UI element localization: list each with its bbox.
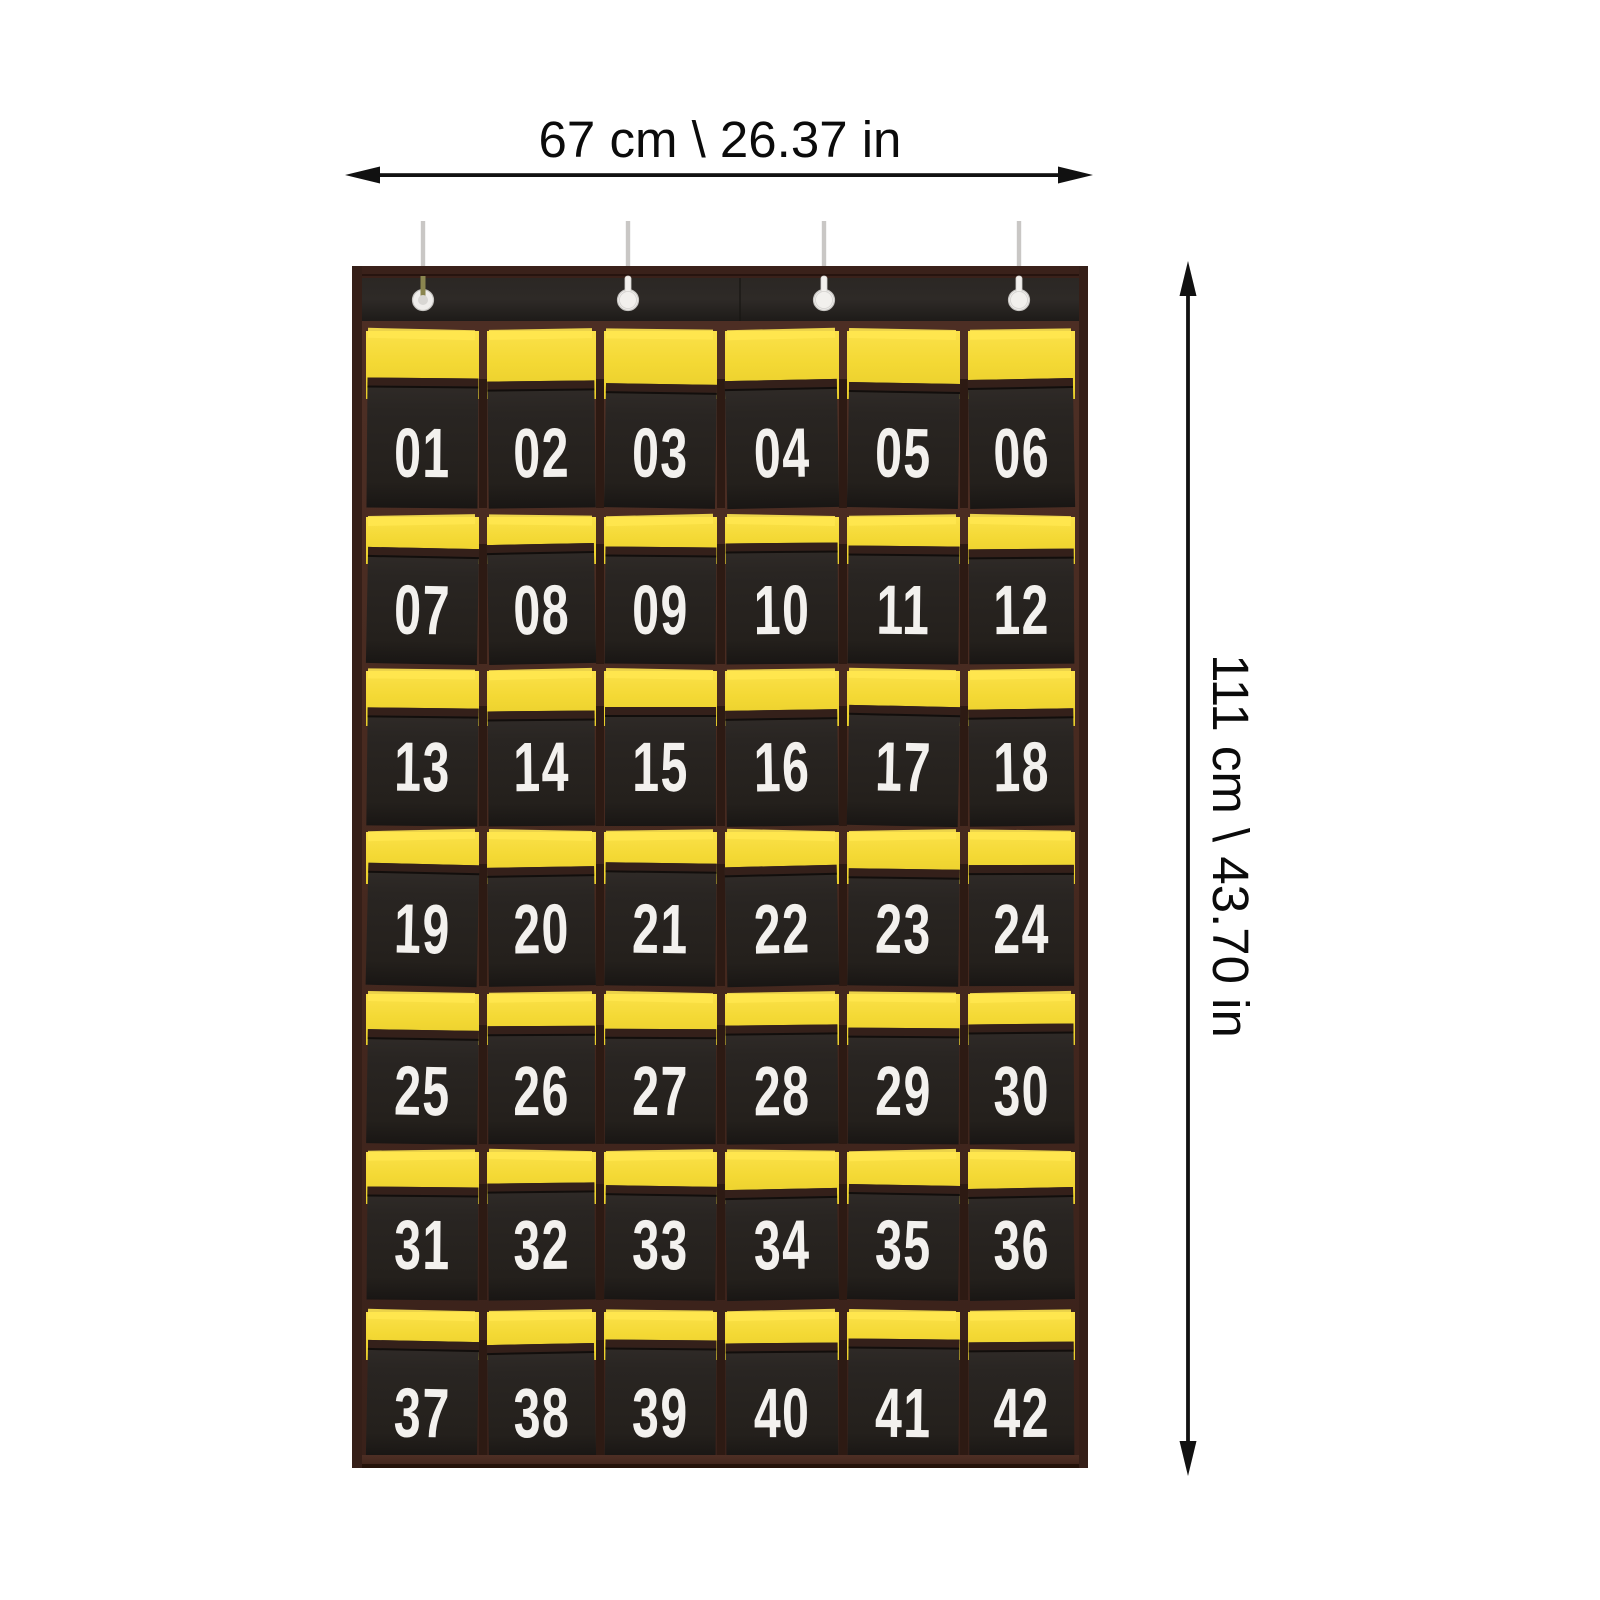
svg-text:09: 09	[632, 571, 689, 649]
svg-text:39: 39	[632, 1374, 689, 1452]
svg-text:29: 29	[875, 1052, 932, 1130]
svg-text:27: 27	[632, 1052, 689, 1130]
svg-text:01: 01	[394, 414, 451, 492]
svg-text:18: 18	[993, 728, 1051, 807]
svg-text:16: 16	[753, 728, 811, 807]
svg-text:30: 30	[993, 1052, 1050, 1131]
svg-text:14: 14	[513, 728, 570, 806]
svg-text:111 cm \ 43.70 in: 111 cm \ 43.70 in	[1202, 654, 1259, 1038]
svg-text:36: 36	[993, 1206, 1051, 1285]
svg-text:20: 20	[513, 890, 571, 969]
svg-text:37: 37	[393, 1374, 451, 1453]
svg-text:38: 38	[513, 1374, 571, 1453]
svg-text:13: 13	[394, 728, 451, 807]
svg-text:17: 17	[874, 728, 932, 807]
svg-text:42: 42	[993, 1374, 1050, 1452]
svg-text:67 cm \ 26.37 in: 67 cm \ 26.37 in	[539, 111, 902, 168]
svg-text:22: 22	[753, 889, 811, 968]
svg-text:02: 02	[513, 414, 570, 493]
svg-text:34: 34	[753, 1206, 811, 1285]
svg-text:35: 35	[875, 1206, 933, 1285]
svg-text:32: 32	[513, 1206, 570, 1285]
svg-text:41: 41	[875, 1374, 932, 1453]
svg-text:07: 07	[393, 571, 451, 650]
svg-text:40: 40	[754, 1374, 811, 1452]
svg-text:33: 33	[632, 1206, 690, 1285]
svg-text:24: 24	[993, 890, 1050, 968]
svg-text:31: 31	[394, 1206, 451, 1284]
svg-text:08: 08	[513, 571, 571, 650]
svg-text:03: 03	[632, 414, 690, 493]
svg-text:19: 19	[393, 889, 451, 968]
svg-text:06: 06	[993, 414, 1051, 493]
svg-text:28: 28	[753, 1052, 810, 1131]
svg-text:21: 21	[632, 890, 689, 969]
svg-text:05: 05	[874, 414, 932, 493]
svg-text:15: 15	[632, 728, 689, 806]
svg-text:26: 26	[513, 1052, 570, 1130]
svg-text:11: 11	[876, 571, 931, 650]
svg-text:10: 10	[753, 571, 810, 649]
svg-text:04: 04	[753, 414, 811, 493]
svg-text:23: 23	[875, 890, 933, 969]
svg-text:12: 12	[993, 571, 1050, 649]
svg-text:25: 25	[394, 1052, 452, 1131]
